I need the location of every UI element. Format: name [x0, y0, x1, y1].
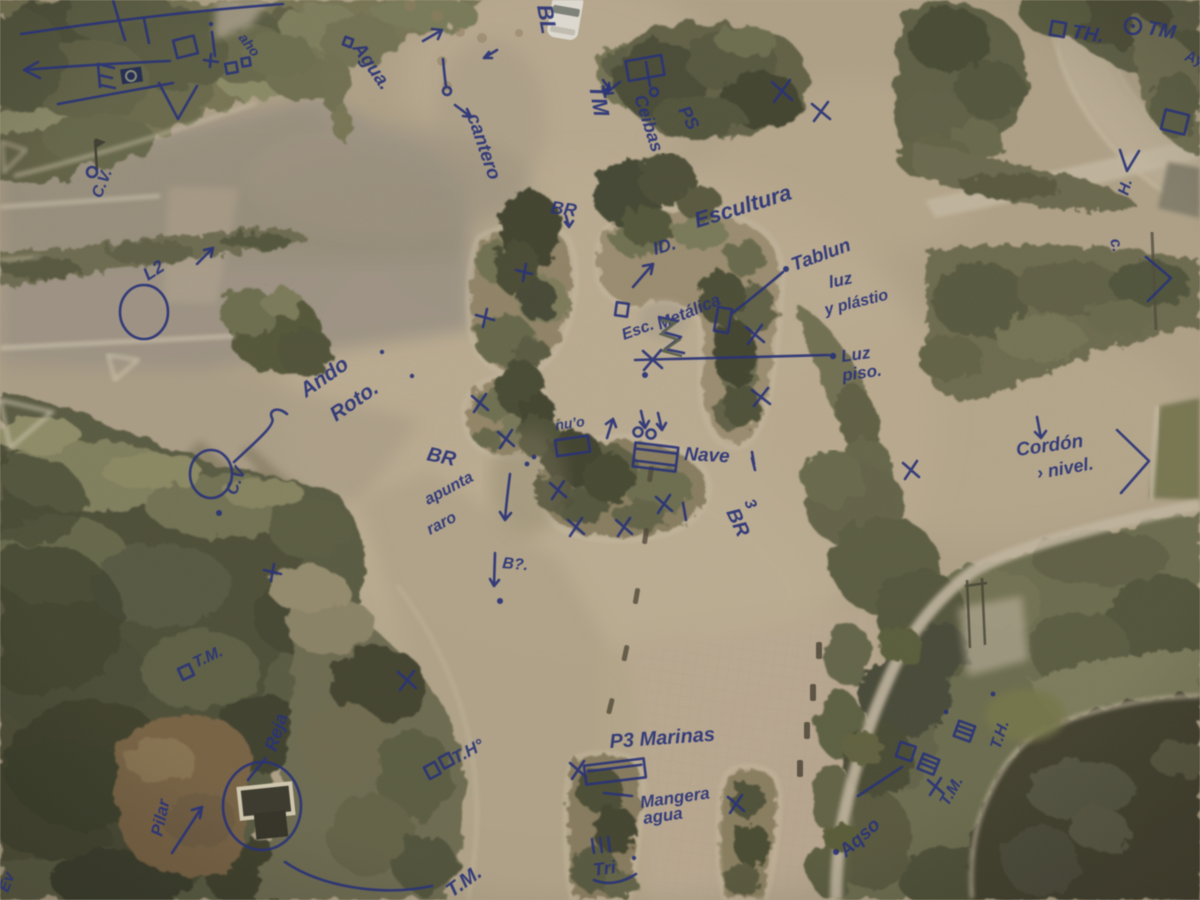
svg-text:Nave: Nave [684, 444, 731, 467]
svg-text:B?.: B?. [502, 555, 529, 574]
svg-text:TH.: TH. [1070, 21, 1105, 47]
svg-text:BL: BL [532, 3, 562, 36]
svg-text:Tri: Tri [592, 857, 618, 880]
svg-text:BR: BR [549, 197, 578, 220]
